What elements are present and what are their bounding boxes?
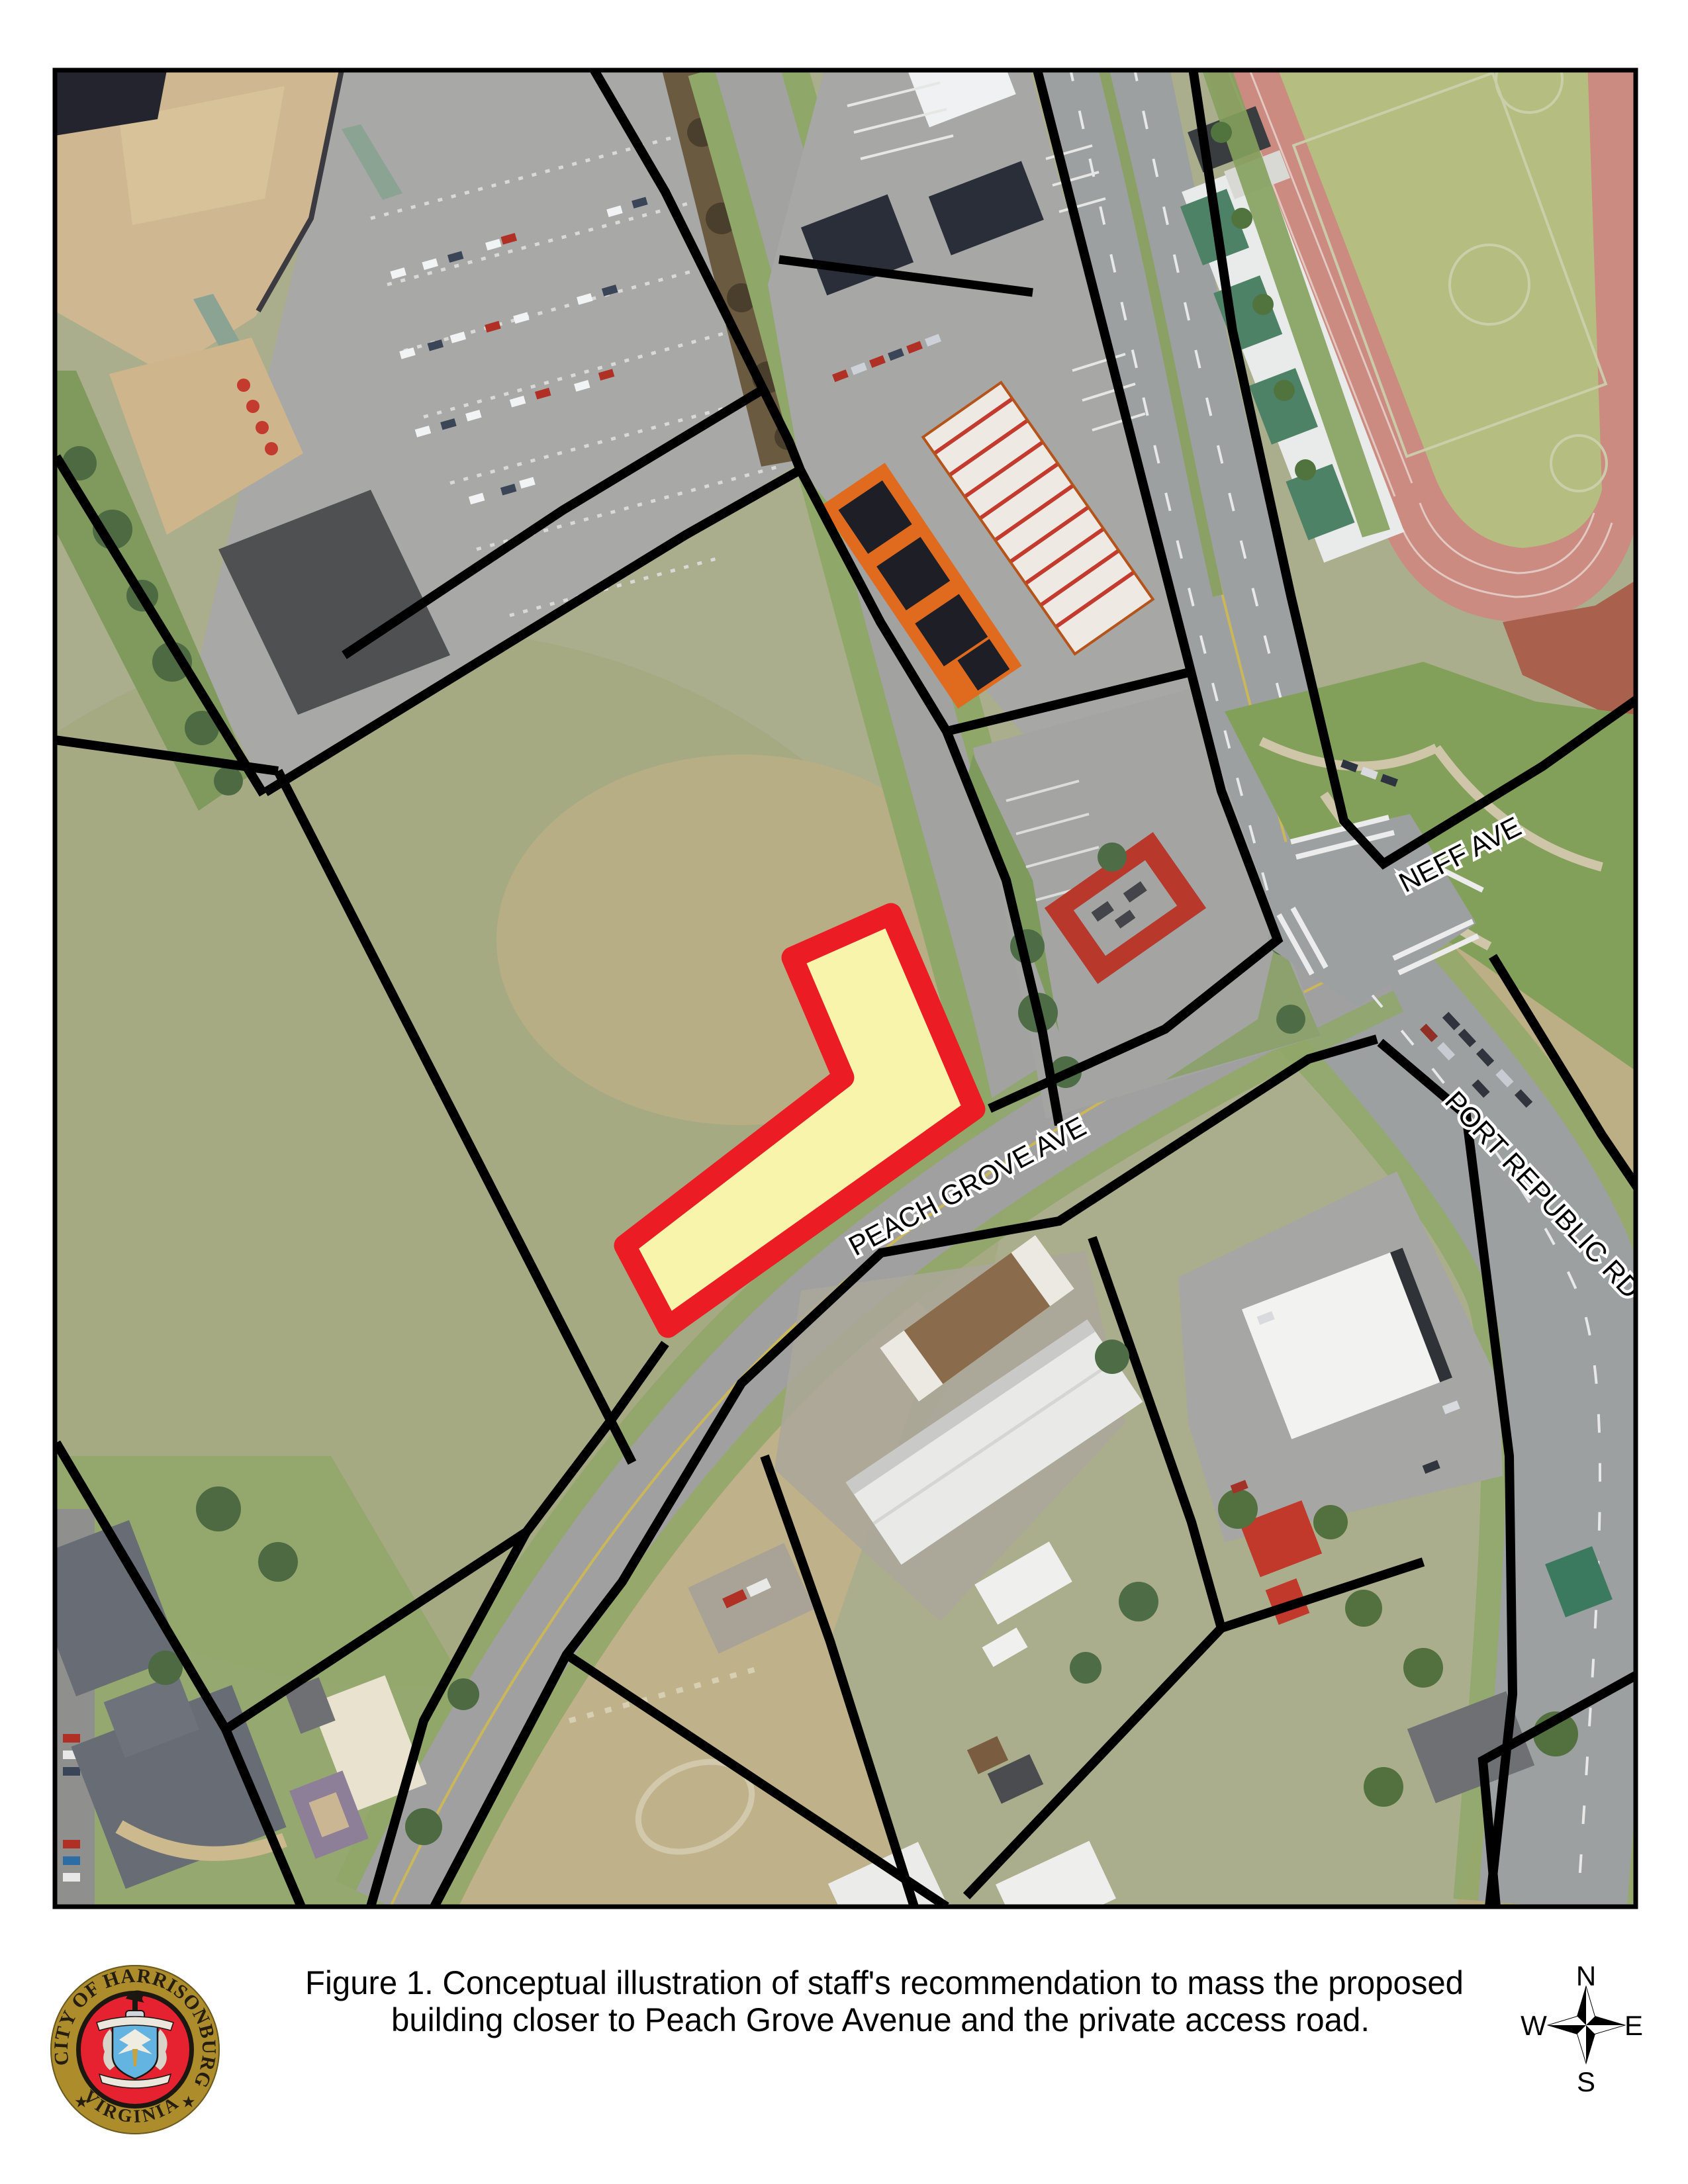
svg-text:★: ★ — [74, 2093, 89, 2111]
svg-text:building closer to Peach Grove: building closer to Peach Grove Avenue an… — [391, 2001, 1370, 2038]
svg-text:Figure 1. Conceptual illustrat: Figure 1. Conceptual illustration of sta… — [305, 1964, 1464, 2001]
svg-text:W: W — [1521, 2010, 1547, 2041]
svg-text:E: E — [1624, 2010, 1643, 2041]
svg-text:★: ★ — [181, 2093, 196, 2111]
svg-text:N: N — [1576, 1960, 1596, 1991]
svg-text:S: S — [1577, 2066, 1595, 2097]
